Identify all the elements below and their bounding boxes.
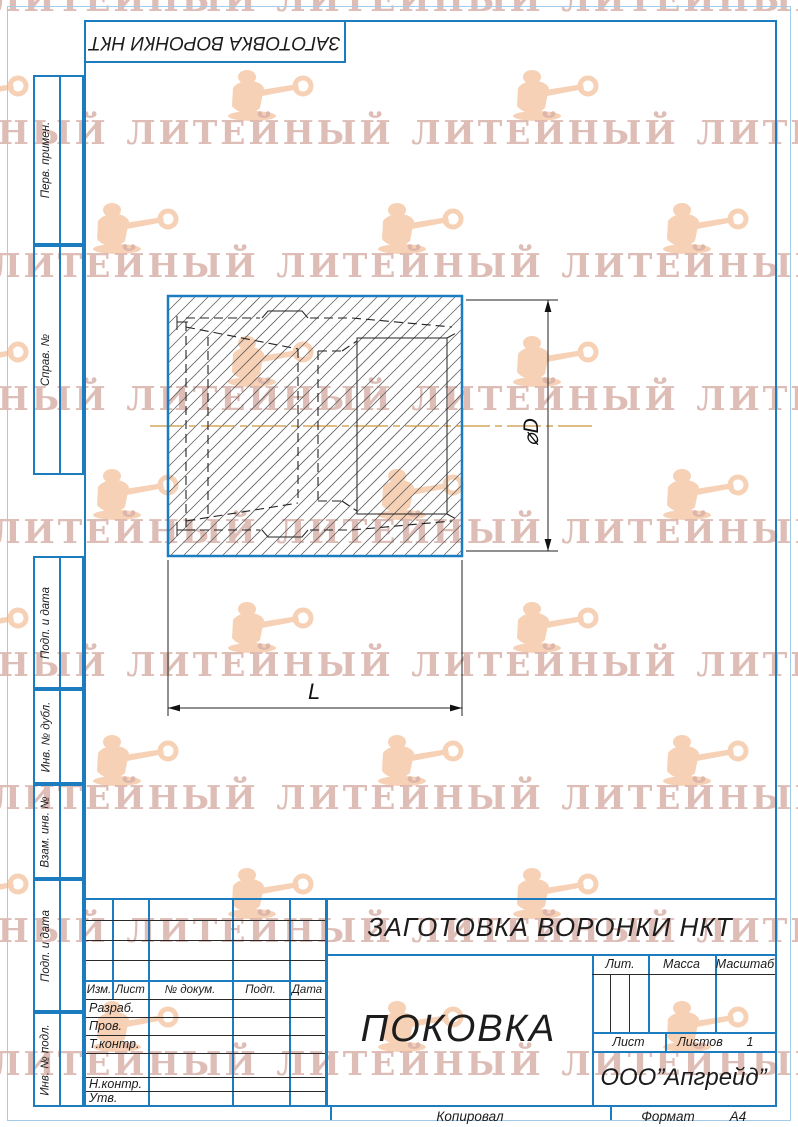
scale-label: Масштаб (715, 954, 775, 974)
rev-header-podp: Подп. (232, 980, 289, 999)
sheets-label: Листов (665, 1032, 735, 1051)
sign-row-nkontr: Н.контр. (86, 1077, 151, 1091)
drawing-sheet: ЛИТЕЙНЫЙЛИТЕЙНЫЙЛИТЕЙНЫЙЛИТЕЙНЫЙЛИТЕЙНЫЙ… (0, 0, 798, 1127)
stamp-box-label: Справ. № (40, 334, 52, 386)
title-block: Изм. Лист № докум. Подп. Дата Разраб. Пр… (84, 898, 777, 1107)
company-name: ООО”Апгрейд” (592, 1051, 775, 1105)
designation-text: ЗАГОТОВКА ВОРОНКИ НКТ (89, 31, 340, 53)
document-title: ЗАГОТОВКА ВОРОНКИ НКТ (325, 900, 775, 954)
sign-row-tkontr: Т.контр. (86, 1035, 151, 1053)
format-value: А4 (716, 1108, 760, 1125)
stamp-box-divider (59, 881, 61, 1010)
sign-row-razrab: Разраб. (86, 999, 151, 1017)
stamp-box-3: Инв. № дубл. (33, 689, 84, 784)
lit-label: Лит. (592, 954, 648, 974)
sign-row-prov: Пров. (86, 1017, 151, 1035)
stamp-box-2: Подп. и дата (33, 556, 84, 689)
stamp-box-label: Взам. инв. № (40, 796, 52, 867)
stamp-box-label: Перв. примен. (40, 122, 52, 198)
stamp-box-label: Инв. № дубл. (40, 701, 52, 772)
dim-length-label: L (308, 679, 320, 704)
rev-header-data: Дата (289, 980, 325, 999)
copied-label: Копировал (330, 1108, 610, 1125)
stamp-box-6: Инв. № подл. (33, 1012, 84, 1107)
stamp-box-divider (59, 247, 61, 473)
stamp-box-label: Инв. № подл. (40, 1024, 52, 1095)
forging-drawing: ⌀D L (130, 270, 610, 740)
stamp-box-label: Подп. и дата (40, 910, 52, 982)
designation-box: ЗАГОТОВКА ВОРОНКИ НКТ (84, 20, 346, 63)
stamp-box-divider (59, 691, 61, 782)
dim-diameter-label: ⌀D (520, 418, 543, 446)
footer-tick-right (610, 1107, 612, 1120)
stamp-box-divider (59, 786, 61, 877)
format-label: Формат (618, 1108, 718, 1125)
stamp-box-divider (59, 77, 61, 243)
rev-header-dokum: № докум. (148, 980, 232, 999)
rev-header-izm: Изм. (86, 980, 112, 999)
stamp-box-1: Справ. № (33, 245, 84, 475)
part-name: ПОКОВКА (325, 954, 592, 1105)
sign-row-utv: Утв. (86, 1091, 151, 1105)
stamp-box-divider (59, 1014, 61, 1105)
sheet-label: Лист (592, 1032, 665, 1051)
mass-label: Масса (648, 954, 715, 974)
stamp-box-0: Перв. примен. (33, 75, 84, 245)
stamp-box-label: Подп. и дата (40, 587, 52, 659)
sheets-value: 1 (735, 1032, 765, 1051)
hidden-profile-lines (186, 318, 458, 530)
stamp-box-divider (59, 558, 61, 687)
rev-header-list: Лист (112, 980, 148, 999)
sign-row-blank (86, 1053, 151, 1077)
stamp-box-5: Подп. и дата (33, 879, 84, 1012)
stamp-box-4: Взам. инв. № (33, 784, 84, 879)
